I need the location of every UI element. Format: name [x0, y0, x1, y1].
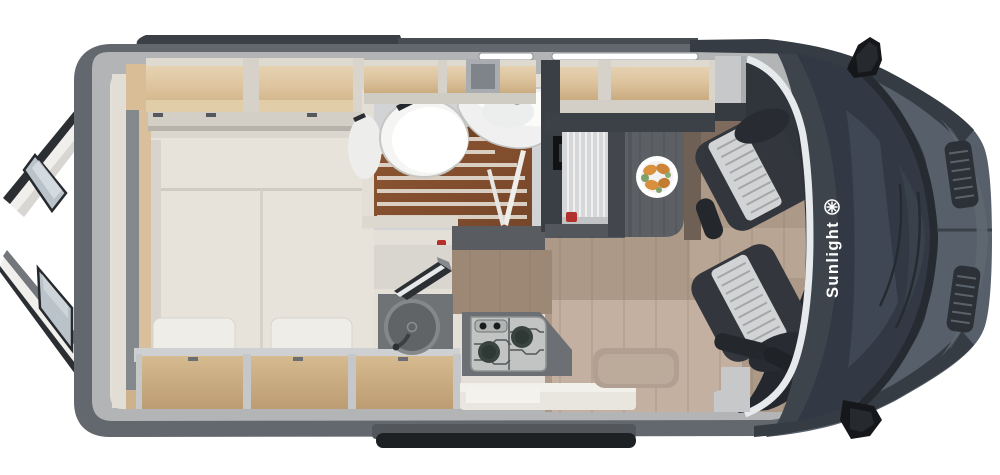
- svg-text:Sunlight: Sunlight: [824, 221, 842, 298]
